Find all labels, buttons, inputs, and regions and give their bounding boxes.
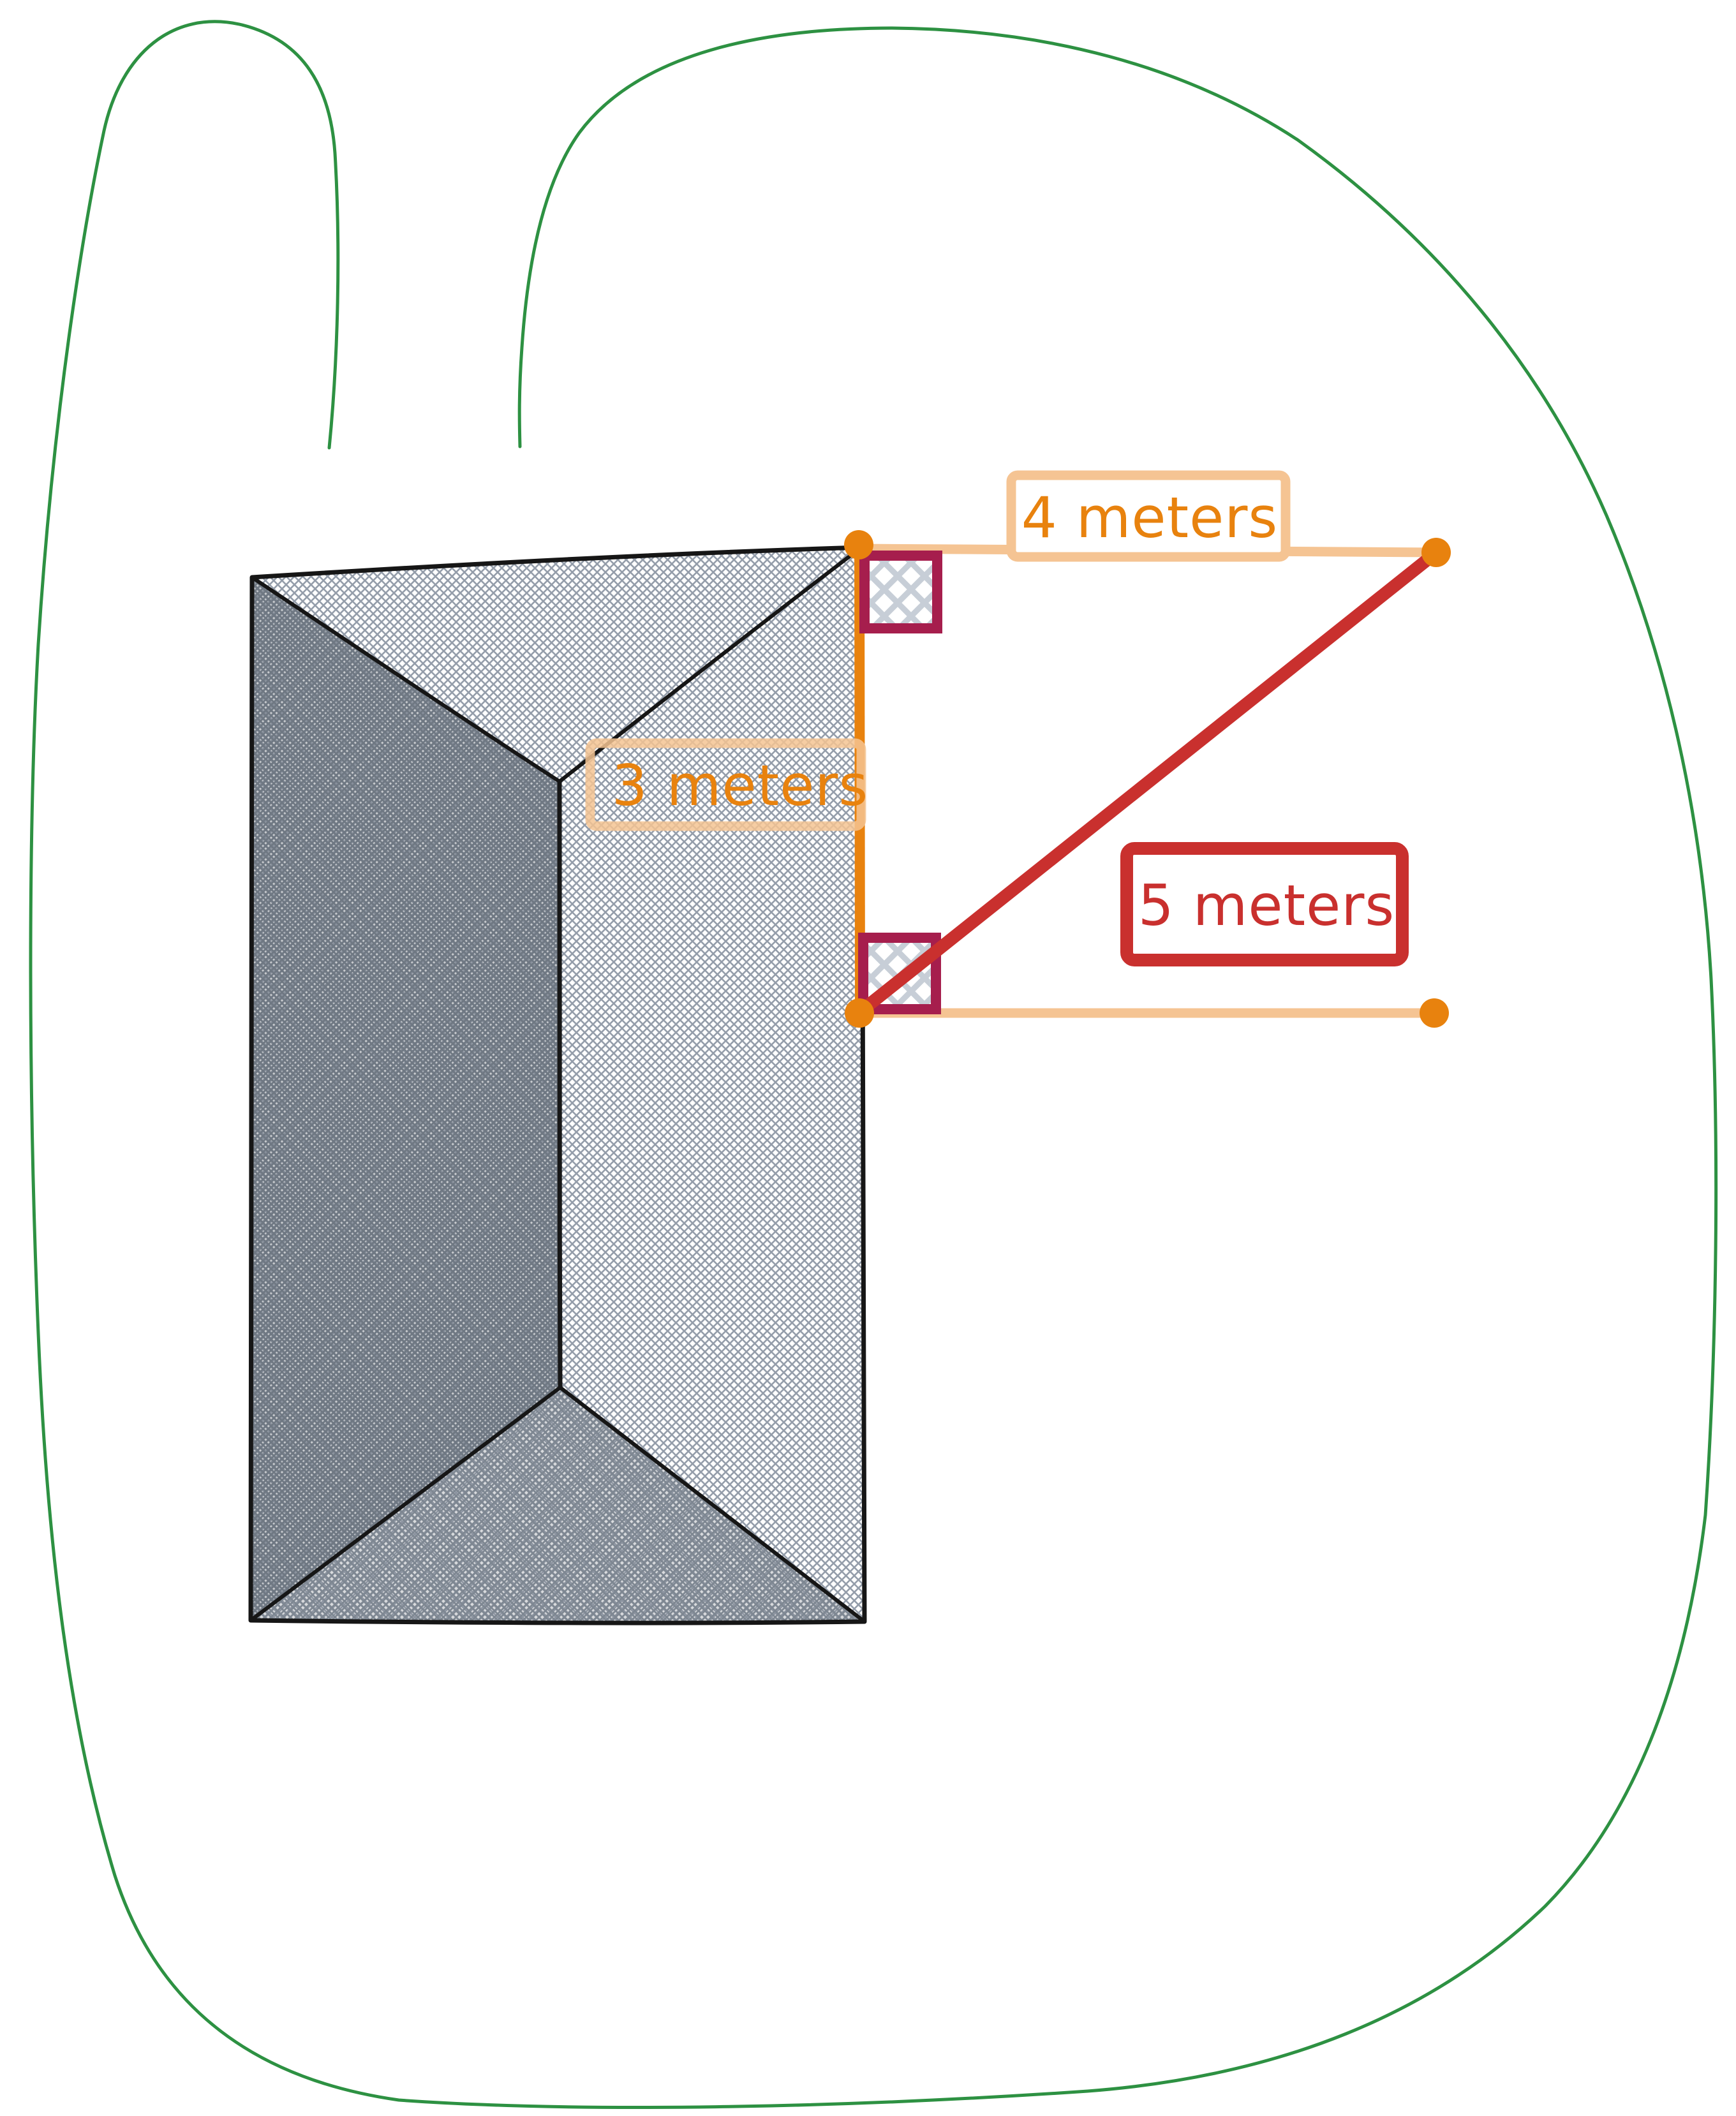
right-angle-marker-top [864,556,937,628]
right-angle-marker-top-box [864,556,937,628]
label-5-meters-text: 5 meters [1138,873,1395,938]
label-5-meters: 5 meters [1127,848,1402,960]
endpoint-dot-wall-bottom [845,998,874,1028]
label-3-meters: 3 meters [590,743,868,826]
label-4-meters: 4 meters [1011,475,1286,557]
endpoint-dot-house-corner [844,530,873,559]
label-4-meters-text: 4 meters [1021,485,1279,551]
label-3-meters-text: 3 meters [612,753,869,818]
diagram-canvas: 4 meters 3 meters 5 meters [0,0,1736,2116]
house-roof-plan [251,547,864,1623]
endpoint-dot-bottom-right [1420,998,1449,1028]
sketch-diagram: 4 meters 3 meters 5 meters [0,0,1736,2116]
endpoint-dot-top-right [1421,538,1451,567]
roof-ridge-line [560,781,560,1387]
